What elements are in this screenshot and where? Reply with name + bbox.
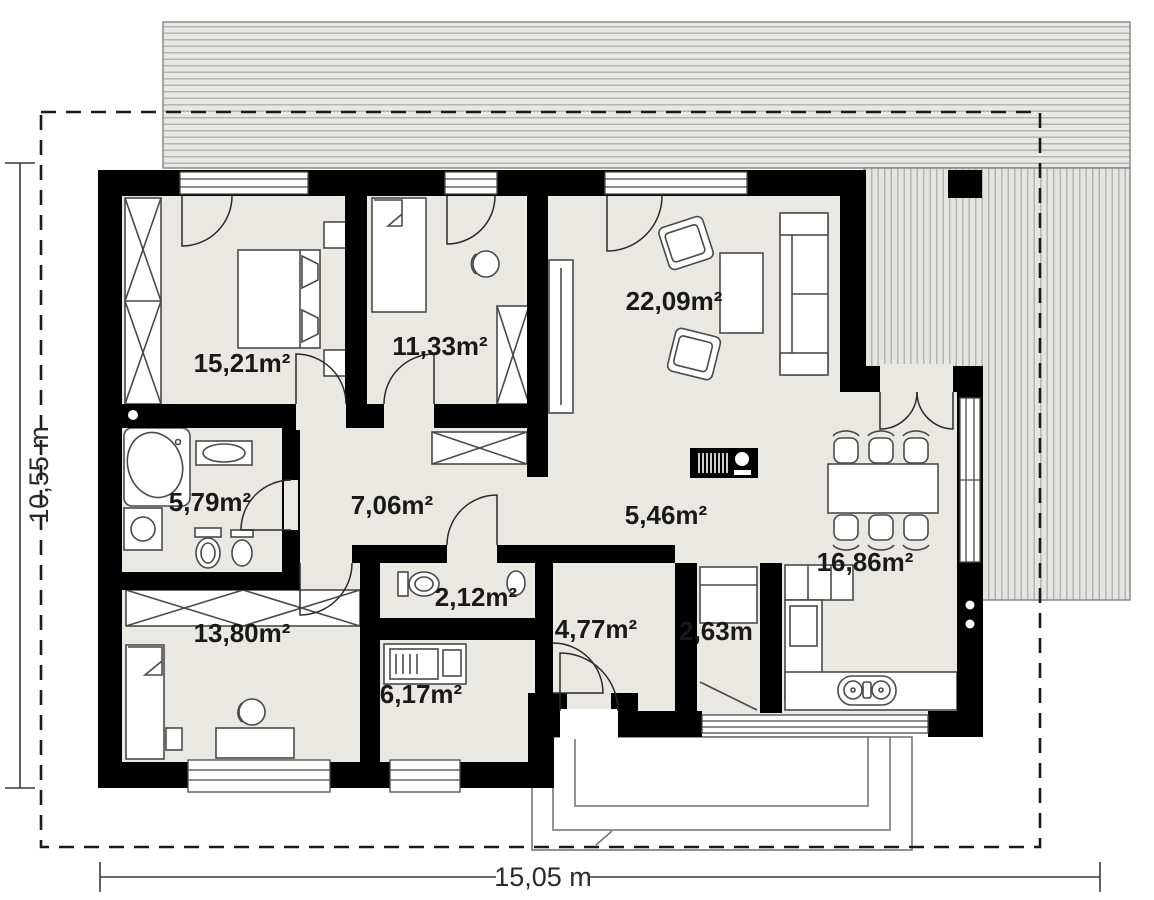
entrance-porch xyxy=(532,737,912,850)
dining-table-icon xyxy=(828,464,938,513)
room-label-bathroom: 5,79m² xyxy=(169,487,252,517)
wall-east-living xyxy=(840,170,866,392)
wall-wc-west xyxy=(360,563,380,762)
fireplace-icon xyxy=(690,448,758,478)
room-label-living-room: 22,09m² xyxy=(626,286,723,316)
wall-closet-west xyxy=(675,563,697,737)
terrace-post-north xyxy=(948,170,982,198)
room-label-dining-kitchen: 16,86m² xyxy=(817,547,914,577)
window-bedroom1 xyxy=(180,172,308,194)
room-label-bedroom-3: 13,80m² xyxy=(194,618,291,648)
window-south-porch xyxy=(702,715,928,733)
wall-south-kitchen xyxy=(928,711,983,737)
wall-west xyxy=(98,170,122,788)
dimension-bottom xyxy=(100,862,1100,892)
wall-closet-east xyxy=(760,563,782,713)
roof-overhang xyxy=(163,22,1130,168)
kitchen-sink-icon xyxy=(838,676,896,705)
dimension-height-label: 10,55 m xyxy=(24,426,54,524)
washbasin-icon xyxy=(196,441,252,465)
bidet-icon xyxy=(231,530,253,566)
sideboard-icon xyxy=(549,260,573,413)
window-bedroom3-south xyxy=(188,760,330,792)
dimension-width-label: 15,05 m xyxy=(494,862,592,892)
room-label-wardrobe-room: 4,77m² xyxy=(555,614,638,644)
room-label-bedroom-2: 11,33m² xyxy=(392,331,488,361)
room-label-entry-hall: 5,46m² xyxy=(625,500,708,530)
wardrobe-icon xyxy=(125,198,161,404)
wall-wardrobe-south-a xyxy=(540,693,567,711)
pouf-icon xyxy=(473,251,499,277)
toilet-icon xyxy=(195,528,221,568)
sofa-icon xyxy=(780,213,828,375)
utility-desk-icon xyxy=(384,644,466,684)
terrace-post-bay xyxy=(953,366,983,392)
window-living xyxy=(605,172,747,194)
room-label-bedroom-1: 15,21m² xyxy=(194,348,291,378)
floor-plan-drawing: 10,55 m 15,05 m 15,21m² 11,33m² 22,09m² … xyxy=(0,0,1154,900)
wall-bath-south xyxy=(122,572,300,590)
floor-plan-canvas: 10,55 m 15,05 m 15,21m² 11,33m² 22,09m² … xyxy=(0,0,1154,900)
wall-terrace-door xyxy=(840,366,882,392)
window-utility-south xyxy=(390,760,460,792)
room-label-closet: 2,63m xyxy=(679,616,753,646)
coffee-table-icon xyxy=(720,253,763,333)
single-bed-icon xyxy=(372,198,426,312)
wall-utility-east xyxy=(535,545,553,693)
room-label-utility-room: 6,17m² xyxy=(380,679,463,709)
washing-machine-icon xyxy=(124,508,162,550)
wc-toilet-icon xyxy=(398,572,439,596)
wall-bed1-bed2 xyxy=(345,196,367,404)
window-bay-east xyxy=(960,398,980,562)
room-label-hallway: 7,06m² xyxy=(351,490,434,520)
room-label-wc: 2,12m² xyxy=(435,582,518,612)
window-bedroom2 xyxy=(445,172,497,194)
wall-wc-south xyxy=(380,618,535,640)
wall-bed2-living xyxy=(527,196,548,477)
hall-cabinet-icon xyxy=(432,432,527,464)
wall-wardrobe-south-b xyxy=(611,693,638,711)
wardrobe2-icon xyxy=(497,306,529,404)
